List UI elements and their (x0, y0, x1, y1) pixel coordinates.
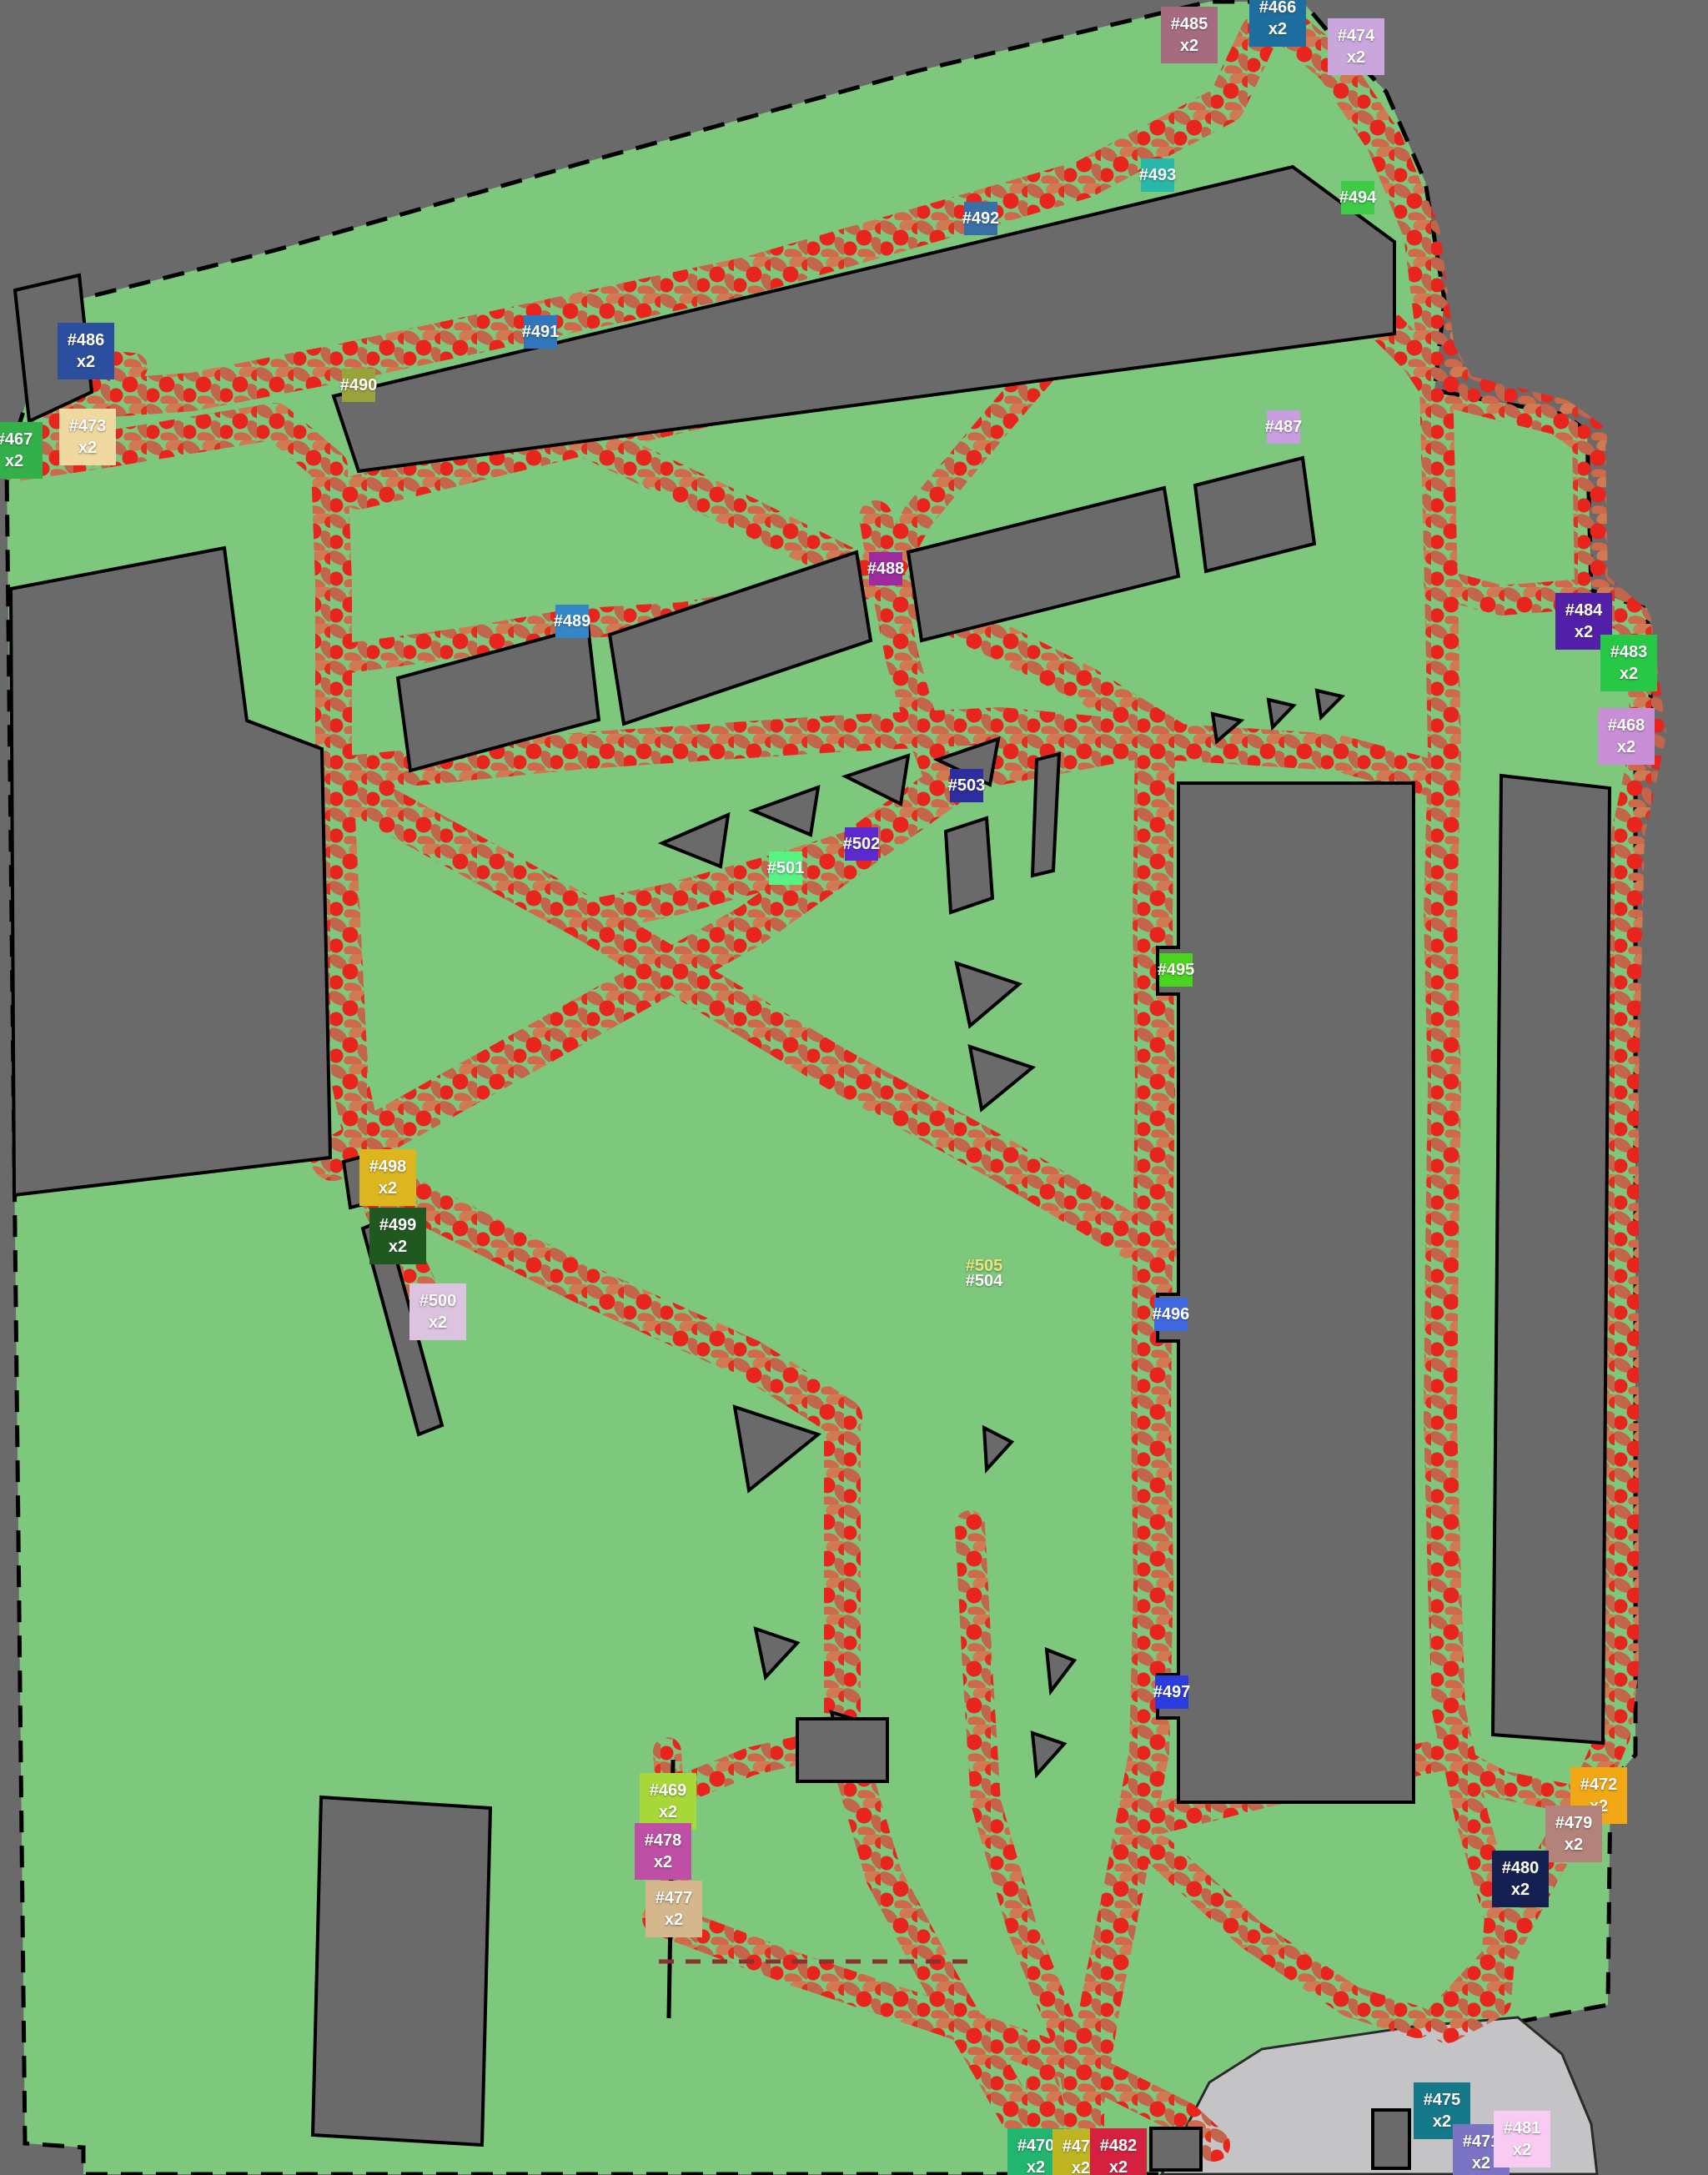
marker-468[interactable]: #468x2 (1598, 708, 1655, 765)
marker-499[interactable]: #499x2 (369, 1208, 426, 1264)
marker-502[interactable]: #502 (845, 827, 878, 861)
marker-466[interactable]: #466x2 (1249, 0, 1306, 47)
marker-469[interactable]: #469x2 (640, 1773, 696, 1830)
marker-492[interactable]: #492 (964, 202, 997, 235)
marker-486[interactable]: #486x2 (58, 323, 114, 379)
marker-489[interactable]: #489 (555, 605, 589, 638)
marker-480[interactable]: #480x2 (1492, 1851, 1549, 1907)
marker-id-label: #478 (645, 1830, 682, 1851)
marker-481[interactable]: #481x2 (1494, 2111, 1550, 2167)
marker-id-label: #494 (1339, 187, 1377, 208)
marker-id-label: #483 (1610, 641, 1648, 663)
marker-multiplier-label: x2 (1180, 35, 1198, 57)
marker-id-label: #486 (68, 329, 105, 351)
marker-multiplier-label: x2 (1575, 621, 1593, 643)
marker-485[interactable]: #485x2 (1161, 7, 1218, 63)
marker-500[interactable]: #500x2 (409, 1283, 466, 1340)
marker-496[interactable]: #496 (1154, 1298, 1188, 1331)
marker-495[interactable]: #495 (1159, 953, 1193, 987)
marker-id-label: #501 (767, 857, 805, 879)
marker-multiplier-label: x2 (1109, 2157, 1128, 2175)
marker-501[interactable]: #501 (769, 851, 802, 885)
marker-multiplier-label: x2 (1268, 18, 1287, 40)
marker-id-label: #479 (1555, 1812, 1593, 1834)
marker-multiplier-label: x2 (1072, 2157, 1090, 2175)
marker-id-label: #496 (1153, 1303, 1190, 1325)
marker-504[interactable]: #504 (980, 1277, 988, 1285)
marker-479[interactable]: #479x2 (1545, 1806, 1602, 1862)
marker-id-label: #485 (1171, 13, 1208, 35)
marker-503[interactable]: #503 (950, 769, 983, 802)
marker-multiplier-label: x2 (5, 450, 23, 472)
marker-490[interactable]: #490 (342, 369, 375, 402)
marker-id-label: #466 (1259, 0, 1297, 18)
building-13 (1151, 2128, 1201, 2170)
marker-id-label: #497 (1153, 1681, 1191, 1703)
marker-multiplier-label: x2 (1620, 663, 1638, 685)
marker-id-label: #474 (1338, 25, 1375, 47)
marker-id-label: #489 (554, 610, 591, 632)
marker-id-label: #488 (867, 558, 905, 580)
building-9 (313, 1797, 490, 2145)
building-18 (946, 818, 992, 912)
building-7 (1158, 783, 1414, 1802)
marker-id-label: #493 (1139, 164, 1177, 186)
marker-multiplier-label: x2 (1513, 2139, 1531, 2161)
marker-494[interactable]: #494 (1341, 181, 1374, 214)
marker-498[interactable]: #498x2 (359, 1149, 416, 1206)
marker-id-label: #472 (1580, 1774, 1618, 1796)
marker-multiplier-label: x2 (1472, 2152, 1490, 2174)
marker-id-label: #500 (419, 1290, 457, 1312)
marker-505[interactable]: #505 (980, 1262, 988, 1270)
building-19 (1032, 754, 1059, 876)
marker-multiplier-label: x2 (1347, 47, 1365, 68)
marker-id-label: #480 (1502, 1857, 1540, 1879)
marker-multiplier-label: x2 (379, 1178, 397, 1199)
marker-id-label: #475 (1424, 2089, 1461, 2111)
marker-multiplier-label: x2 (1617, 736, 1635, 758)
marker-id-label: #503 (948, 775, 986, 796)
marker-467[interactable]: #467x2 (0, 422, 43, 479)
marker-id-label: #490 (340, 374, 378, 396)
marker-multiplier-label: x2 (654, 1851, 672, 1873)
marker-multiplier-label: x2 (1027, 2157, 1045, 2175)
marker-id-label: #481 (1504, 2117, 1541, 2139)
marker-multiplier-label: x2 (389, 1236, 407, 1258)
marker-id-label: #487 (1265, 416, 1303, 438)
marker-id-label: #492 (962, 208, 1000, 229)
marker-478[interactable]: #478x2 (635, 1823, 691, 1880)
marker-id-label: #469 (650, 1780, 687, 1801)
marker-497[interactable]: #497 (1155, 1675, 1188, 1709)
marker-multiplier-label: x2 (77, 351, 95, 373)
marker-id-label: #498 (369, 1156, 407, 1178)
marker-multiplier-label: x2 (429, 1312, 447, 1334)
map-canvas (0, 0, 1708, 2175)
marker-multiplier-label: x2 (78, 437, 97, 459)
marker-482[interactable]: #482x2 (1090, 2128, 1147, 2175)
building-12 (1373, 2110, 1409, 2168)
marker-id-label: #502 (843, 833, 881, 855)
marker-id-label: #470 (1017, 2135, 1055, 2157)
marker-id-label: #491 (522, 321, 560, 343)
building-8 (1493, 776, 1610, 1743)
marker-493[interactable]: #493 (1141, 158, 1174, 192)
marker-id-label: #482 (1100, 2135, 1138, 2157)
simulation-map: #485x2#466x2#474x2#486x2#473x2#467x2#484… (0, 0, 1708, 2175)
marker-474[interactable]: #474x2 (1328, 18, 1384, 75)
marker-488[interactable]: #488 (869, 552, 902, 585)
marker-multiplier-label: x2 (665, 1909, 683, 1931)
marker-id-label: #467 (0, 429, 33, 450)
marker-487[interactable]: #487 (1267, 410, 1300, 444)
marker-multiplier-label: x2 (1511, 1879, 1530, 1901)
marker-491[interactable]: #491 (524, 315, 557, 349)
marker-id-label: #495 (1158, 959, 1195, 981)
marker-id-label: #473 (69, 415, 107, 437)
building-28 (797, 1719, 887, 1781)
marker-477[interactable]: #477x2 (646, 1881, 702, 1937)
marker-id-label: #468 (1608, 715, 1645, 736)
marker-multiplier-label: x2 (659, 1801, 677, 1823)
marker-multiplier-label: x2 (1565, 1834, 1583, 1856)
marker-id-label: #477 (656, 1887, 693, 1909)
marker-483[interactable]: #483x2 (1600, 635, 1657, 691)
marker-multiplier-label: x2 (1433, 2111, 1451, 2132)
marker-473[interactable]: #473x2 (59, 409, 116, 465)
marker-id-label: #499 (379, 1214, 417, 1236)
marker-id-label: #484 (1565, 600, 1603, 621)
